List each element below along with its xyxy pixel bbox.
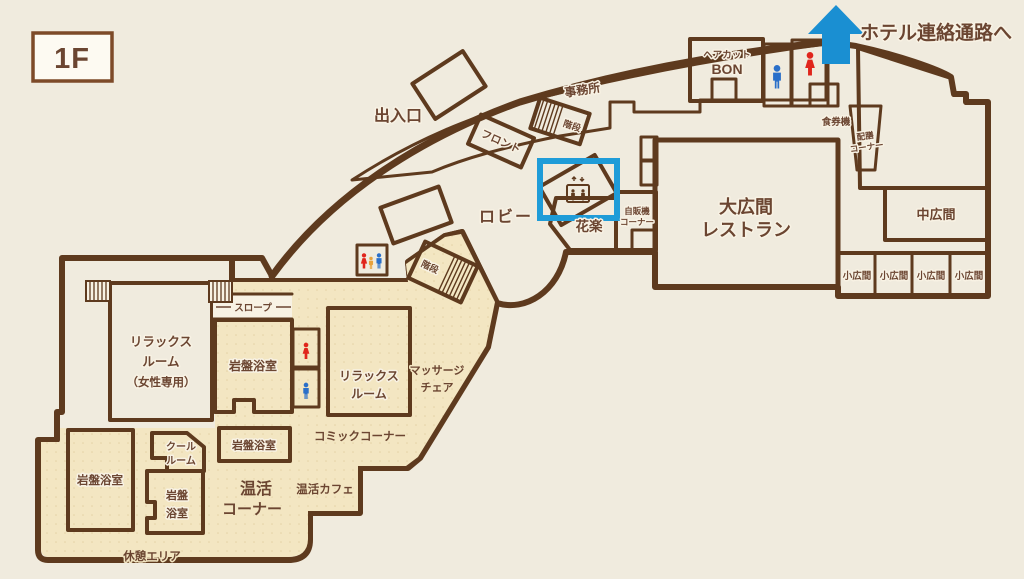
large-hall-label-2: レストラン [701,220,791,240]
female-toilet-icon [805,52,815,75]
onkatsu-label-2: コーナー [222,501,282,518]
medium-hall-label: 中広間 [916,207,955,222]
upper-stairs: 階段 [530,98,589,145]
massage-label-1: マッサージ [410,364,465,377]
vending-side-box [632,230,656,250]
relax-women-label-3: （女性専用） [127,375,196,389]
small-hall-label-2: 小広間 [879,270,909,282]
onkatsu-cafe-label: 温活カフェ [296,482,354,496]
hotel-link-label: ホテル連絡通路へ [860,21,1012,44]
lobby-table [380,187,451,244]
massage-label-2: チェア [421,381,454,394]
large-hall-label-1: 大広間 [719,196,773,217]
floor-plan-1f: フロント 階段 階段 [0,0,1024,579]
front-desk: フロント [468,115,534,168]
relax-room-women [110,283,212,420]
haircut-label-2: BON [711,61,742,77]
relax-label-1: リラックス [339,369,399,383]
male-toilet-icon [376,253,381,268]
floor-badge-label: 1F [54,43,90,75]
wing-stairs-left [86,281,110,301]
child-toilet-icon [369,257,373,269]
wing-stairs-right [209,281,232,302]
slope-label: スロープ [234,302,272,314]
relax-label-2: ルーム [351,387,387,401]
stone-bath-d-label: 岩盤浴室 [76,473,123,487]
haircut-label-1: ヘアカット [703,50,751,61]
female-toilet-icon [361,253,367,268]
up-arrow-icon [808,5,864,64]
lobby-label: ロビー [479,208,533,226]
entrance-vestibule [412,51,485,119]
cool-room-label-2: ルーム [166,455,196,467]
backoffice-hatch-block [858,48,988,188]
office-label: 事務所 [563,79,601,99]
onkatsu-label-1: 温活 [239,479,272,498]
relax-women-label-2: ルーム [142,355,180,369]
comic-label: コミックコーナー [314,430,406,443]
small-hall-label-4: 小広間 [954,270,984,282]
ticket-machine-label: 食券機 [821,116,851,128]
relax-women-label-1: リラックス [130,335,192,349]
vending-label-1: 自販機 [624,206,650,216]
floor-plan-canvas: フロント 階段 階段 [0,0,1024,579]
stone-bath-a-label: 岩盤浴室 [228,358,277,373]
rest-area-label: 休憩エリア [122,549,181,563]
vending-label-2: コーナー [620,217,654,227]
stone-bath-b-label: 岩盤浴室 [231,438,276,452]
small-hall-label-3: 小広間 [916,270,946,282]
haircut-bon-notch [712,79,736,101]
floor-badge: 1F [33,33,112,81]
lobby-toilet-room [357,245,387,275]
stone-bath-c-label-1: 岩盤 [165,488,189,502]
male-toilet-icon [773,65,781,88]
cool-room-label-1: クール [166,441,196,453]
small-hall-label-1: 小広間 [842,270,872,282]
entrance-label: 出入口 [374,106,422,125]
flower-shop-label: 花楽 [576,218,604,234]
stone-bath-c-label-2: 浴室 [166,506,188,520]
small-room-box [810,84,838,106]
